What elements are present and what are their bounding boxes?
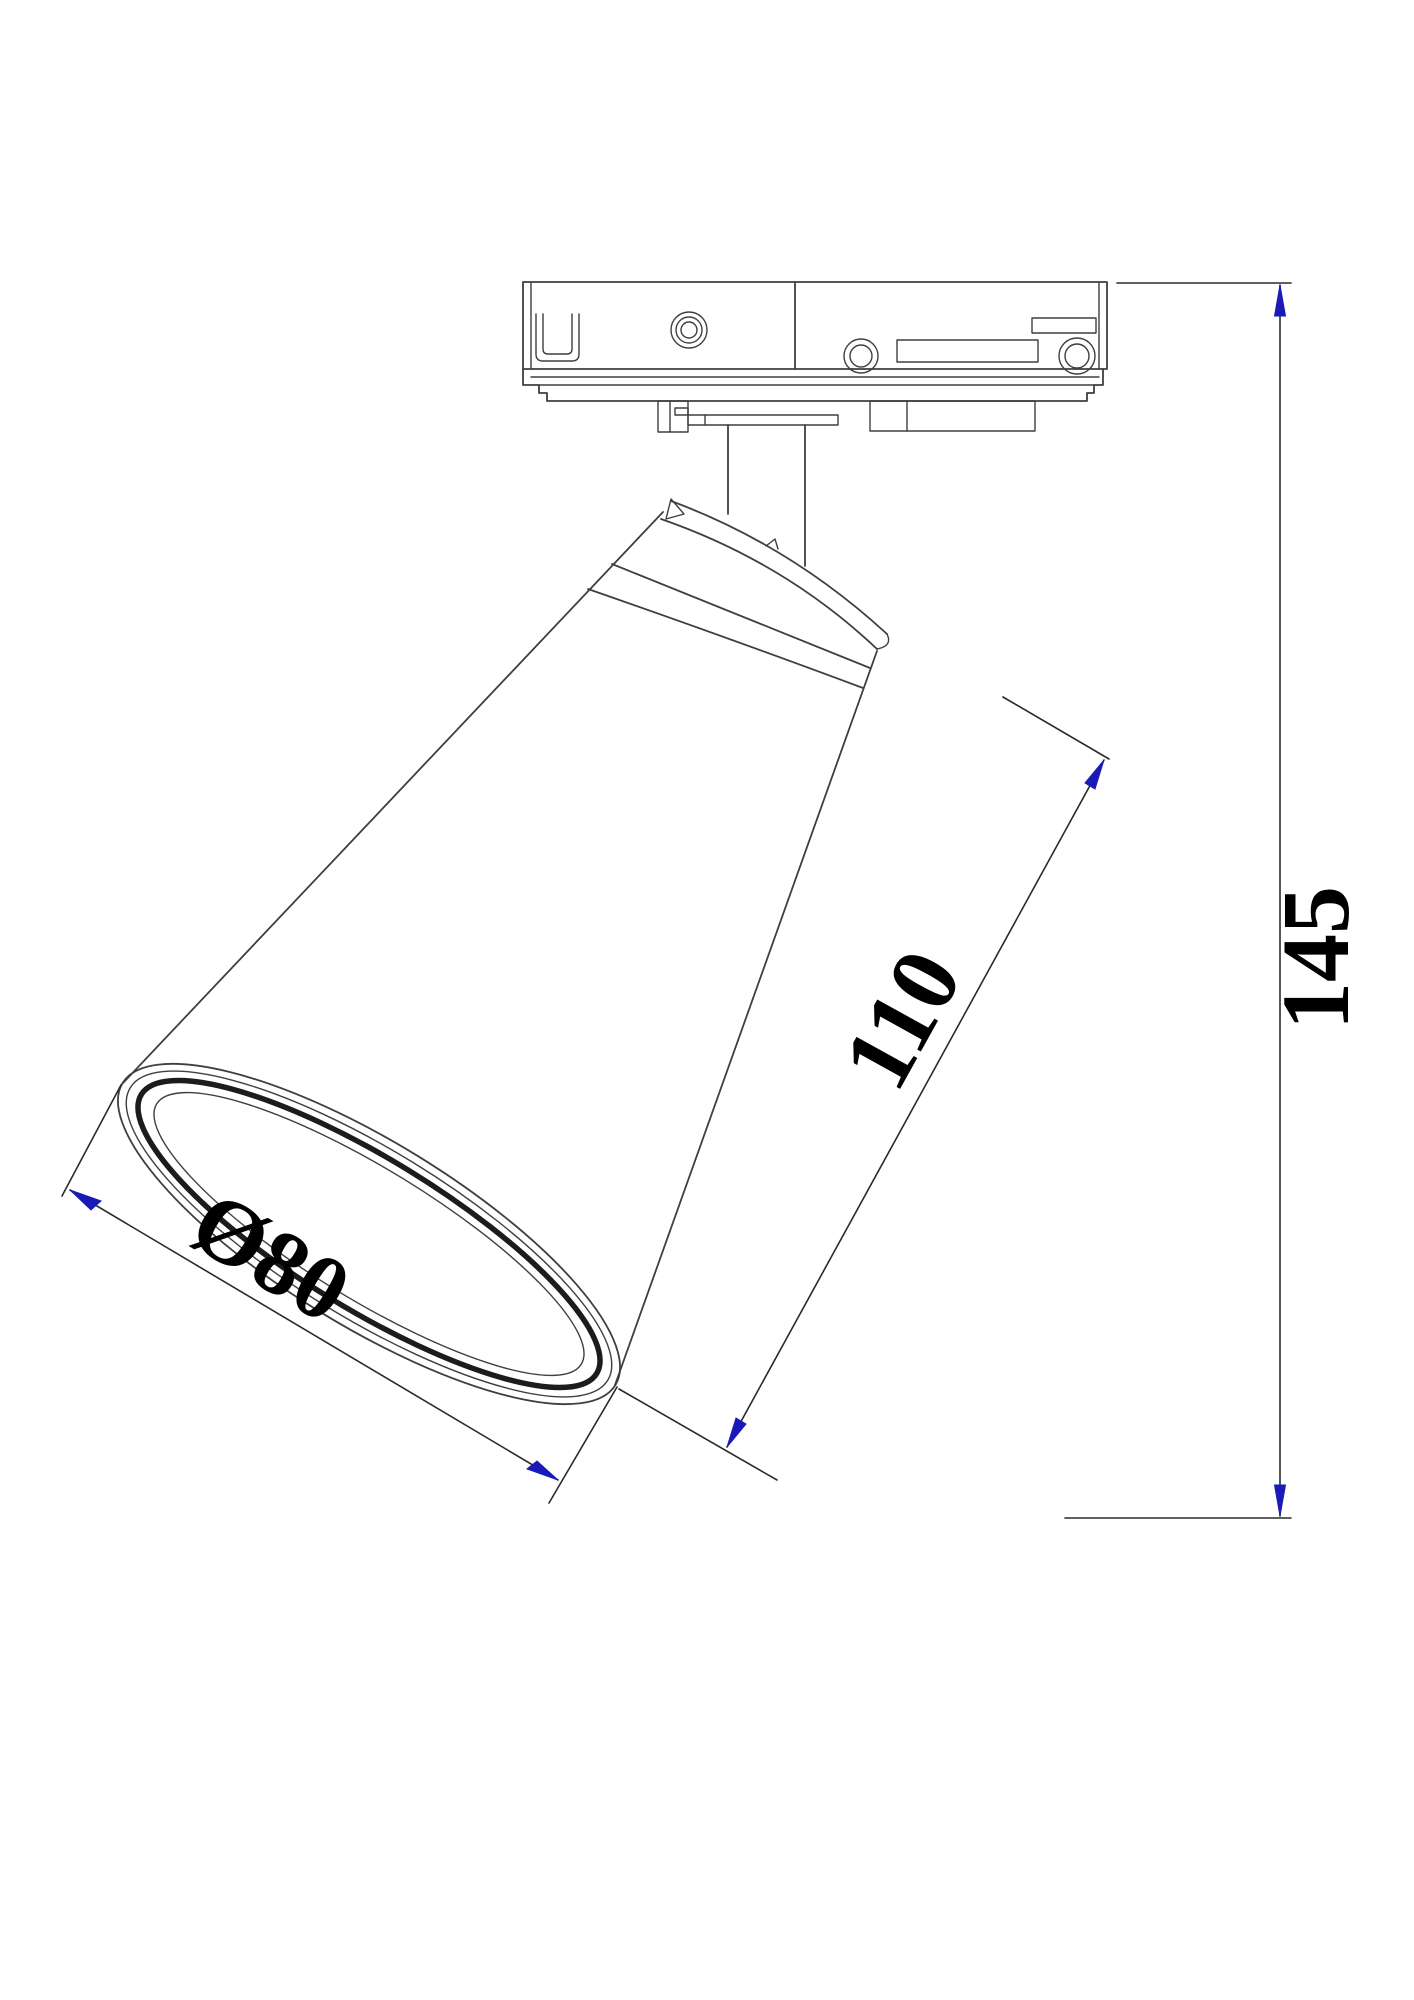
terminal-slot	[897, 340, 1038, 362]
hole-right-inner	[1065, 344, 1089, 368]
dimension-label-diameter: Ø80	[175, 1171, 368, 1343]
tab-left	[658, 401, 688, 432]
dimension-total-height: 145	[1065, 283, 1369, 1518]
spotlight-drawing: 145 110 Ø80	[0, 0, 1414, 2000]
dimension-label-110: 110	[821, 933, 982, 1106]
ext-line-left	[62, 1085, 121, 1196]
dimension-opening-diameter: Ø80	[62, 1085, 617, 1503]
adapter-body	[523, 282, 1107, 369]
label-slot	[1032, 318, 1096, 333]
neck-rim-notch	[766, 539, 778, 549]
hole-left-inner	[850, 345, 872, 367]
arrow-lower-icon	[727, 1418, 746, 1447]
ext-line-upper	[1003, 697, 1109, 759]
neck-rim-inner	[661, 519, 877, 649]
screw-head-inner	[681, 322, 697, 338]
arrow-down-icon	[1275, 1485, 1286, 1516]
track-adapter	[523, 282, 1107, 374]
band-upper	[612, 564, 870, 668]
neck-rim-outer	[671, 501, 887, 634]
mounting-plates	[523, 369, 1103, 432]
arrow-up-icon	[1275, 285, 1286, 316]
tab-left-notch	[675, 408, 688, 415]
tab-right-block	[870, 401, 1035, 431]
rim-ellipse-thick	[102, 1031, 636, 1438]
technical-drawing-canvas: 145 110 Ø80	[0, 0, 1414, 2000]
cone-left-edge	[123, 512, 663, 1083]
hole-left-outer	[844, 339, 878, 373]
dimension-shade-length: 110	[619, 697, 1109, 1480]
arrow-left-icon	[70, 1190, 101, 1210]
arrow-upper-icon	[1085, 760, 1104, 789]
neck-rim-cap	[877, 634, 889, 649]
cone-right-edge	[615, 651, 877, 1385]
opening-rim	[75, 1005, 664, 1464]
swivel-bar	[688, 415, 838, 425]
adapter-clip-inner	[543, 314, 572, 354]
rim-ellipse-outer	[75, 1005, 664, 1464]
dimension-label-145: 145	[1262, 886, 1369, 1030]
screw-head-mid	[676, 317, 702, 343]
lamp-shade	[75, 499, 889, 1463]
ext-line-lower	[619, 1389, 777, 1480]
